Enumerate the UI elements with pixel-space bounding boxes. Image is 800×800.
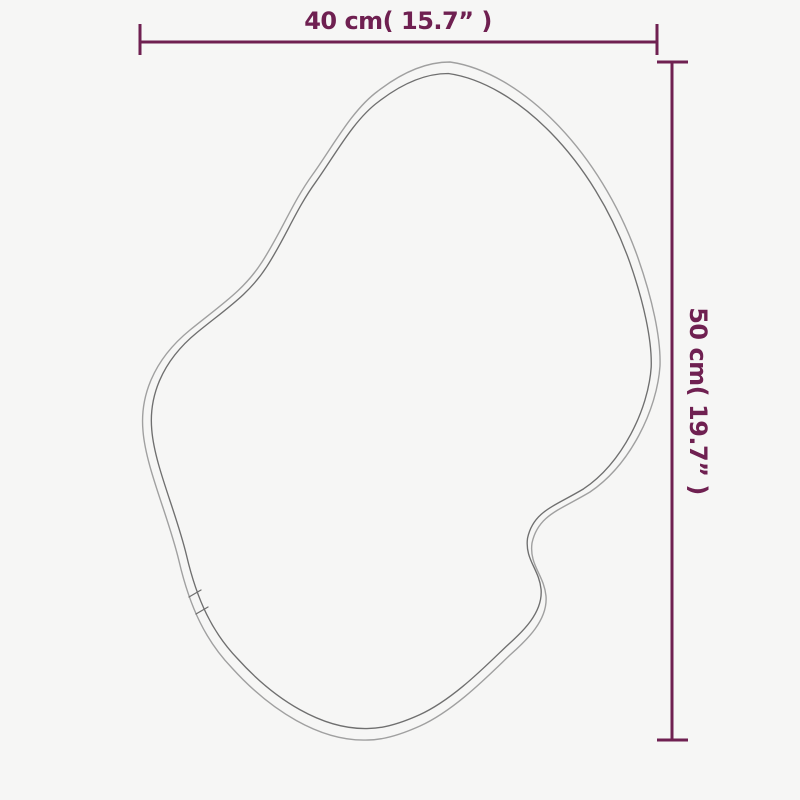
height-dimension-label: 50 cm( 19.7” ) [684, 201, 712, 601]
dimension-lines [140, 24, 688, 740]
product-dimension-diagram: 40 cm( 15.7” ) 50 cm( 19.7” ) [0, 0, 800, 800]
diagram-canvas [0, 0, 800, 800]
width-dimension-label: 40 cm( 15.7” ) [198, 5, 598, 37]
mirror-outline-inner [151, 73, 651, 728]
